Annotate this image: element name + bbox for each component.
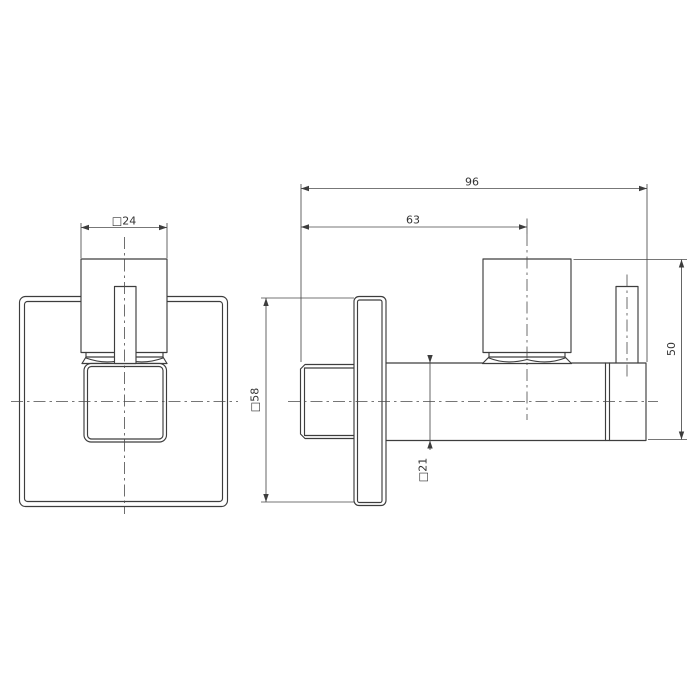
dim-handle-width: □24 — [81, 215, 167, 259]
dim24-arrow-left — [81, 225, 89, 230]
front-outlet-pipe — [115, 287, 137, 364]
dim-overall-length: 96 — [301, 176, 647, 363]
dim-body-square: □21 — [417, 355, 433, 482]
technical-drawing: □24 — [0, 0, 700, 700]
dim63-arrow-left — [301, 224, 309, 229]
dim96-arrow-left — [301, 186, 309, 191]
dim24-label: □24 — [112, 215, 136, 228]
side-plate-outline — [354, 297, 386, 506]
dim50-arrow-top — [679, 260, 684, 268]
dim50-label: 50 — [665, 342, 678, 356]
front-body-outline — [84, 364, 167, 443]
dim58-extension-lines — [261, 298, 354, 502]
dim-handle-offset: 63 — [301, 214, 527, 235]
side-view: 96 63 50 □21 — [249, 176, 688, 506]
dim58-label: □58 — [249, 388, 262, 412]
front-view: □24 — [11, 215, 238, 515]
dim96-extension-lines — [301, 184, 647, 362]
dim24-extension-lines — [81, 223, 167, 258]
dim50-arrow-bottom — [679, 432, 684, 440]
dim58-arrow-top — [263, 298, 268, 306]
dim96-label: 96 — [465, 176, 479, 189]
dim63-arrow-right — [519, 224, 527, 229]
dim21-arrow-top — [427, 355, 432, 363]
dim96-arrow-right — [639, 186, 647, 191]
dim63-label: 63 — [406, 214, 420, 227]
side-collar-fillet-curve — [489, 358, 565, 362]
dim21-arrow-bottom — [427, 441, 432, 449]
dim21-label: □21 — [417, 458, 430, 482]
dim24-arrow-right — [159, 225, 167, 230]
drawing-canvas: □24 — [0, 0, 700, 700]
dim58-arrow-bottom — [263, 494, 268, 502]
